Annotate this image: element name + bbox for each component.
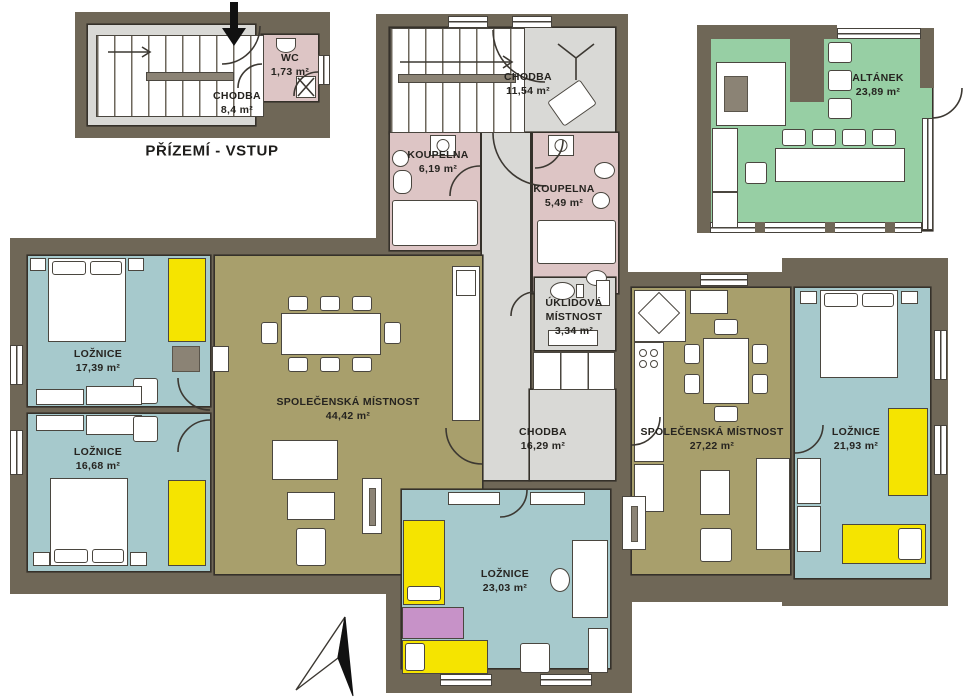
room-label-bedroom-2: LOŽNICE16,68 m² — [74, 446, 122, 474]
room-label-upper-hall: CHODBA11,54 m² — [504, 71, 552, 99]
chair — [752, 374, 768, 394]
wardrobe — [168, 258, 206, 342]
dresser — [402, 607, 464, 639]
cooktop-burner — [650, 360, 658, 368]
pillow — [407, 586, 441, 601]
room-bath-right — [533, 133, 618, 293]
chair — [782, 129, 806, 146]
cabinet — [690, 290, 728, 314]
dresser — [36, 415, 84, 431]
dining-table — [703, 338, 749, 404]
bath-sink — [594, 162, 615, 179]
wall-segment — [920, 28, 934, 88]
window — [448, 16, 488, 28]
stair-rail — [146, 72, 234, 81]
hall-closet — [533, 352, 615, 390]
window — [934, 330, 947, 380]
window — [10, 430, 23, 475]
chair — [828, 98, 852, 119]
chair — [320, 357, 340, 372]
room-label-gazebo: ALTÁNEK23,89 m² — [852, 72, 903, 100]
room-label-bedroom-1: LOŽNICE17,39 m² — [74, 348, 122, 376]
sofa — [272, 440, 338, 480]
north-arrow — [296, 617, 353, 696]
window — [440, 674, 492, 686]
chair — [714, 406, 738, 422]
nightstand — [901, 291, 918, 304]
bathtub — [537, 220, 616, 264]
porch-post — [885, 222, 895, 233]
room-label-entry-hall: CHODBA8,4 m² — [213, 90, 261, 118]
stove-box — [172, 346, 200, 372]
chair — [828, 42, 852, 63]
pillow — [52, 261, 86, 275]
shelf — [448, 492, 500, 505]
porch-post — [825, 222, 835, 233]
cabinet — [797, 506, 821, 552]
dining-table — [281, 313, 381, 355]
window — [934, 425, 947, 475]
floor-plan: CHODBA8,4 m² WC1,73 m² PŘÍZEMÍ - VSTUP C… — [0, 0, 968, 700]
wardrobe — [888, 408, 928, 496]
kitchen-counter — [712, 128, 738, 192]
shelf — [530, 492, 585, 505]
window — [540, 674, 592, 686]
pillow — [824, 293, 858, 307]
washing-machine — [548, 135, 574, 156]
coffee-table — [287, 492, 335, 520]
window — [10, 345, 23, 385]
cooktop-burner — [639, 360, 647, 368]
dresser — [86, 386, 142, 405]
pillow — [92, 549, 124, 563]
pillow — [862, 293, 894, 307]
chair — [745, 162, 767, 184]
armchair — [520, 643, 550, 673]
utility-toilet-tank — [576, 284, 584, 298]
bathtub — [392, 200, 478, 246]
nightstand — [30, 258, 46, 271]
chimney — [790, 32, 824, 102]
fireplace-hearth — [724, 76, 748, 112]
room-label-utility: ÚKLIDOVÁ MÍSTNOST3,34 m² — [531, 297, 617, 339]
chair — [352, 357, 372, 372]
chair — [842, 129, 866, 146]
chair — [320, 296, 340, 311]
wardrobe — [168, 480, 206, 566]
nightstand — [128, 258, 144, 271]
room-label-living-main: SPOLEČENSKÁ MÍSTNOST44,42 m² — [276, 396, 419, 424]
chair — [261, 322, 278, 344]
chair — [288, 296, 308, 311]
armchair — [700, 528, 732, 562]
chair — [684, 374, 700, 394]
window — [318, 55, 330, 85]
nightstand — [130, 552, 147, 566]
chair — [714, 319, 738, 335]
pillow — [405, 643, 425, 671]
room-label-bath-right: KOUPELNA5,49 m² — [533, 183, 594, 211]
room-label-living-right: SPOLEČENSKÁ MÍSTNOST27,22 m² — [640, 426, 783, 454]
cooktop-burner — [650, 349, 658, 357]
door-arc — [932, 88, 962, 118]
porch-rail — [922, 118, 933, 230]
pillow — [898, 528, 922, 560]
nightstand — [33, 552, 50, 566]
tv — [631, 506, 638, 542]
window — [512, 16, 552, 28]
pillow — [54, 549, 88, 563]
armchair — [296, 528, 326, 566]
chair — [384, 322, 401, 344]
cooktop-burner — [639, 349, 647, 357]
chair — [288, 357, 308, 372]
room-label-bath-left: KOUPELNA6,19 m² — [407, 149, 468, 177]
coffee-table — [700, 470, 730, 515]
kitchen-sink — [456, 270, 476, 296]
room-label-main-hall: CHODBA16,29 m² — [519, 426, 567, 454]
wc-sink — [276, 38, 296, 53]
dresser — [36, 389, 84, 405]
armchair — [133, 416, 158, 442]
porch-rail — [837, 28, 921, 39]
desk — [572, 540, 608, 618]
gazebo-sink — [712, 192, 738, 228]
room-label-wc: WC1,73 m² — [271, 52, 309, 80]
chair — [872, 129, 896, 146]
wall-segment — [697, 25, 711, 233]
plan-caption: PŘÍZEMÍ - VSTUP — [145, 143, 278, 160]
cabinet — [797, 458, 821, 504]
stair-rail — [398, 74, 516, 83]
window — [700, 274, 748, 286]
chair — [752, 344, 768, 364]
bath-toilet — [592, 192, 610, 209]
nightstand — [800, 291, 817, 304]
chair — [684, 344, 700, 364]
tv — [369, 488, 376, 526]
tv-stand — [588, 628, 608, 673]
room-label-bedroom-3: LOŽNICE21,93 m² — [832, 426, 880, 454]
desk-chair — [550, 568, 570, 592]
porch-post — [755, 222, 765, 233]
room-label-bedroom-4: LOŽNICE23,03 m² — [481, 568, 529, 596]
sofa — [756, 458, 790, 550]
long-table — [775, 148, 905, 182]
chair — [812, 129, 836, 146]
chair — [828, 70, 852, 91]
cabinet — [212, 346, 229, 372]
pillow — [90, 261, 122, 275]
chair — [352, 296, 372, 311]
